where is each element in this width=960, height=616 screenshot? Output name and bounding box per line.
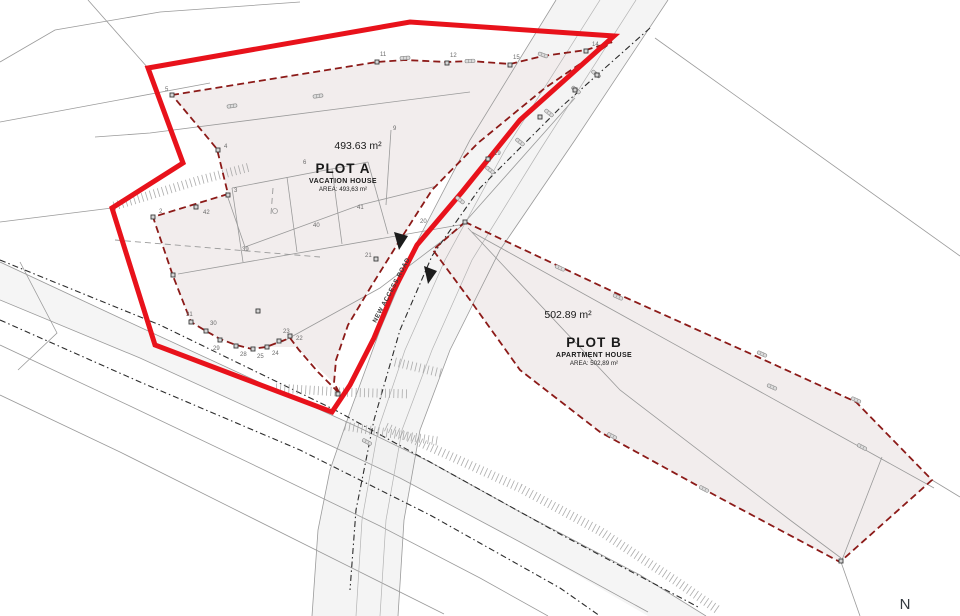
site-plan-canvas: 5432423940416911121514192021313029282524… [0, 0, 960, 616]
survey-point-marker [375, 60, 379, 64]
survey-point-marker [839, 559, 843, 563]
plot-b-area-note: AREA: 502,89 m² [570, 360, 618, 367]
survey-point-marker [234, 344, 238, 348]
survey-point-marker [256, 309, 260, 313]
survey-point-marker [573, 88, 577, 92]
plot-b-type-label: APARTMENT HOUSE [556, 352, 632, 359]
survey-point-marker [463, 220, 467, 224]
survey-point-marker [584, 49, 588, 53]
survey-point-number: 29 [213, 346, 220, 352]
survey-point-marker [216, 148, 220, 152]
survey-point-number: 19 [494, 151, 501, 157]
survey-point-marker [170, 93, 174, 97]
plot-b-area-label: 502.89 m² [544, 309, 592, 321]
boundary-marker-symbol [465, 59, 475, 63]
plot-a-type-label: VACATION HOUSE [309, 178, 377, 185]
survey-point-marker [538, 115, 542, 119]
survey-point-number: 14 [592, 42, 599, 48]
survey-point-number: 40 [313, 223, 320, 229]
survey-point-marker [226, 193, 230, 197]
survey-point-marker [277, 339, 281, 343]
survey-point-marker [336, 392, 340, 396]
survey-point-marker [151, 215, 155, 219]
survey-point-marker [251, 347, 255, 351]
survey-point-number: 28 [240, 352, 247, 358]
survey-point-number: 12 [450, 53, 457, 59]
survey-point-marker [445, 61, 449, 65]
survey-point-marker [265, 345, 269, 349]
survey-point-number: 39 [242, 247, 249, 253]
survey-point-marker [288, 334, 292, 338]
survey-point-number: 41 [357, 205, 364, 211]
survey-point-marker [508, 63, 512, 67]
survey-point-marker [189, 320, 193, 324]
survey-point-marker [204, 329, 208, 333]
survey-point-number: 42 [203, 210, 210, 216]
survey-point-number: 30 [210, 321, 217, 327]
survey-point-marker [374, 257, 378, 261]
plot-a-title: PLOT A [316, 161, 371, 176]
north-indicator: N [900, 596, 911, 613]
survey-point-number: 15 [513, 55, 520, 61]
survey-point-number: 31 [186, 312, 193, 318]
survey-point-number: 24 [272, 351, 279, 357]
survey-point-marker [194, 205, 198, 209]
survey-point-marker [218, 338, 222, 342]
plot-b-title: PLOT B [566, 335, 622, 350]
survey-point-number: 5 [165, 87, 169, 93]
survey-point-marker [486, 157, 490, 161]
site-plan-page: 5432423940416911121514192021313029282524… [0, 0, 960, 616]
boundary-marker-symbol [400, 56, 410, 60]
survey-point-marker [171, 273, 175, 277]
plot-a-area-note: AREA: 493,63 m² [319, 186, 367, 193]
survey-point-number: 20 [420, 219, 427, 225]
survey-point-number: 11 [380, 52, 387, 58]
survey-point-number: 21 [365, 253, 372, 259]
survey-point-number: 25 [257, 354, 264, 360]
plot-a-area-label: 493.63 m² [334, 140, 382, 152]
survey-point-marker [595, 73, 599, 77]
survey-point-number: 22 [296, 336, 303, 342]
